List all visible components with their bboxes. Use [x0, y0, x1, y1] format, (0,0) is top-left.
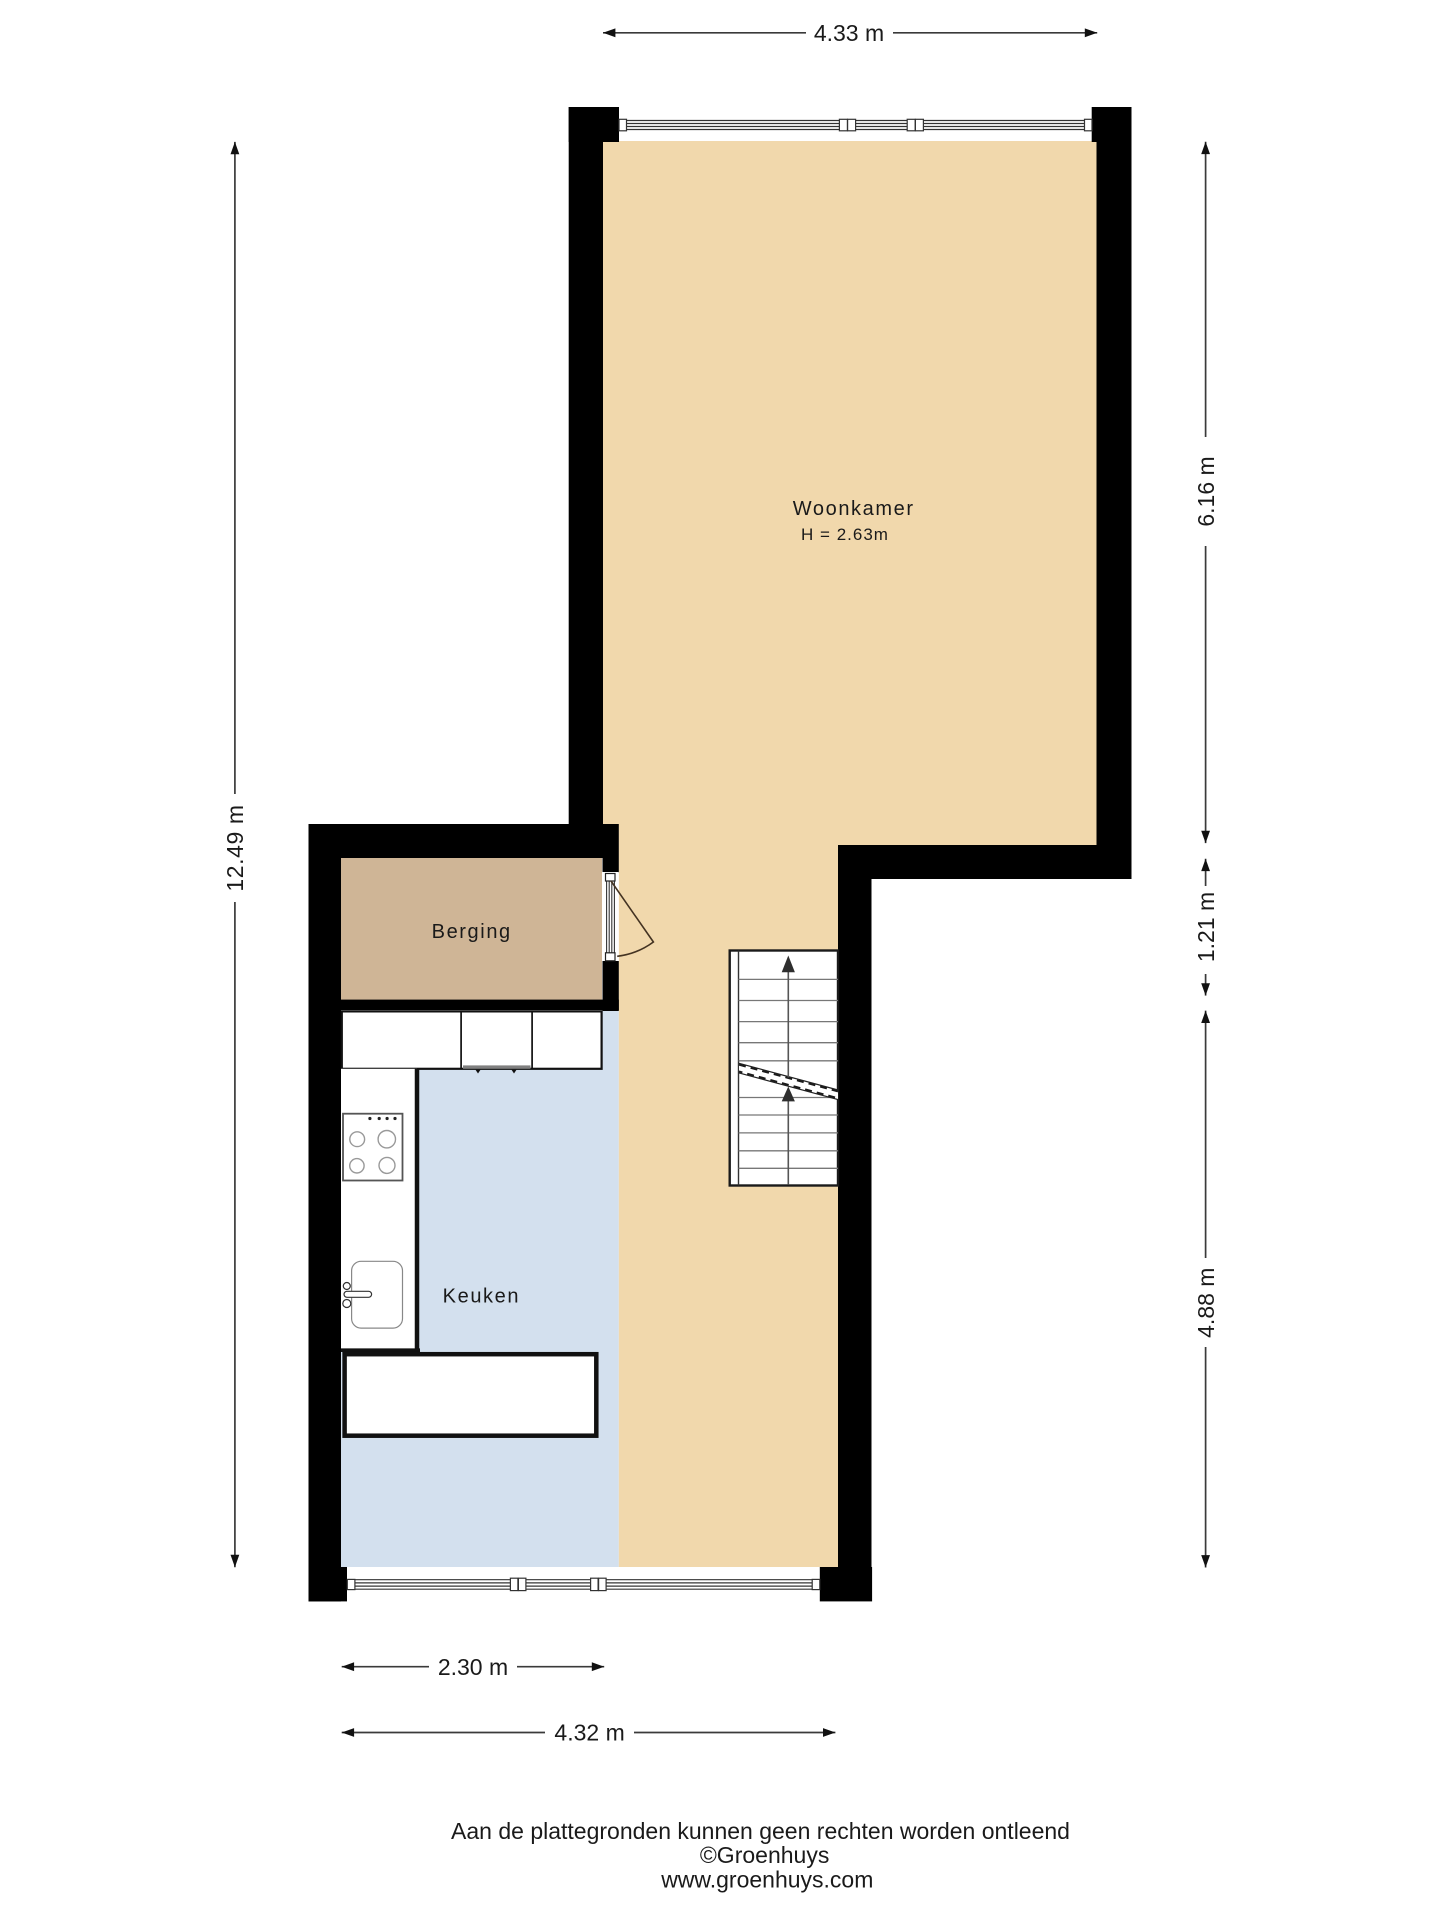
svg-text:6.16 m: 6.16 m — [1193, 456, 1219, 526]
svg-text:4.88 m: 4.88 m — [1193, 1268, 1219, 1338]
svg-text:©Groenhuys: ©Groenhuys — [700, 1842, 829, 1868]
svg-text:4.33 m: 4.33 m — [814, 20, 884, 46]
svg-text:4.32 m: 4.32 m — [554, 1720, 624, 1746]
svg-text:Woonkamer: Woonkamer — [793, 498, 915, 520]
svg-text:12.49 m: 12.49 m — [222, 804, 248, 891]
svg-text:1.21 m: 1.21 m — [1193, 892, 1219, 962]
svg-text:H = 2.63m: H = 2.63m — [801, 525, 889, 544]
svg-text:2.30 m: 2.30 m — [438, 1654, 508, 1680]
svg-text:www.groenhuys.com: www.groenhuys.com — [660, 1867, 873, 1893]
svg-text:Aan de plattegronden kunnen ge: Aan de plattegronden kunnen geen rechten… — [451, 1818, 1070, 1844]
svg-text:Keuken: Keuken — [443, 1286, 520, 1308]
svg-text:Berging: Berging — [432, 921, 512, 943]
